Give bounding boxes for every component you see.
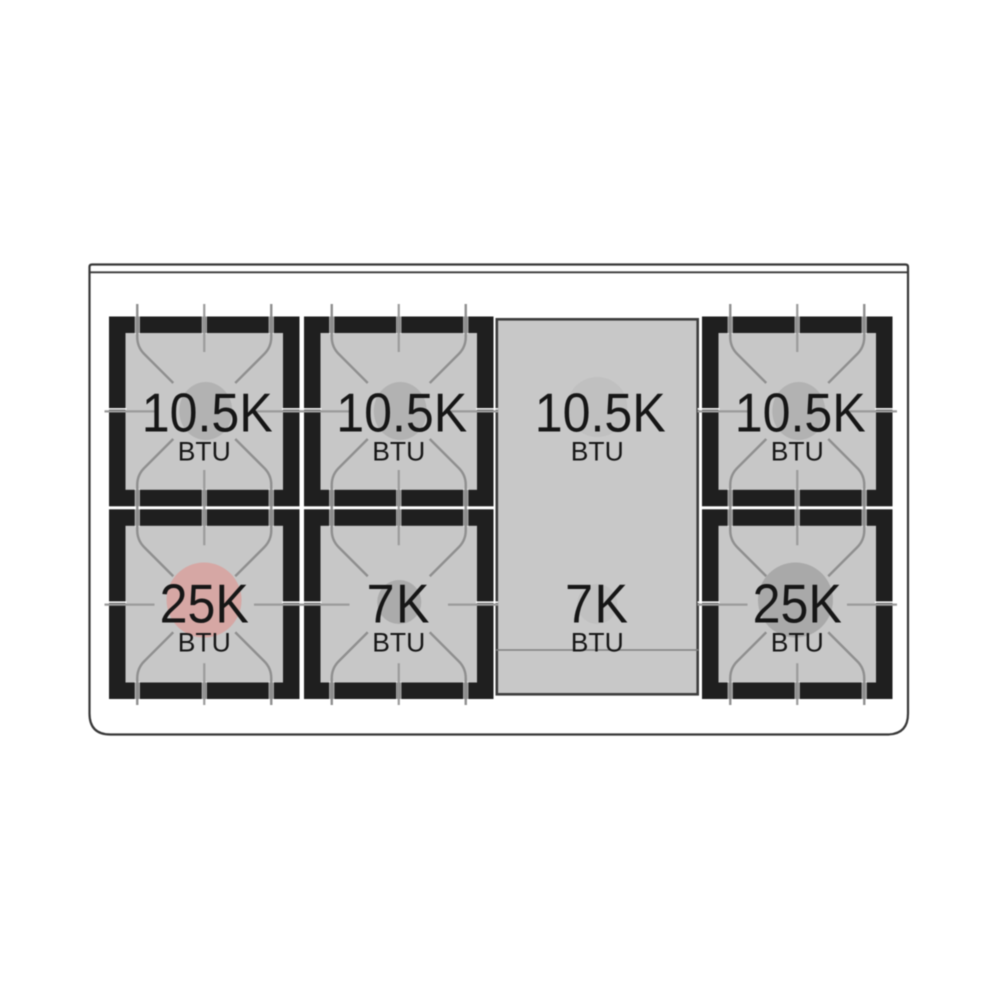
- svg-text:25K: 25K: [753, 575, 842, 635]
- svg-text:7K: 7K: [565, 575, 629, 635]
- svg-text:BTU: BTU: [571, 627, 624, 657]
- svg-text:BTU: BTU: [178, 436, 231, 466]
- svg-text:BTU: BTU: [771, 627, 824, 657]
- svg-text:10.5K: 10.5K: [142, 383, 273, 443]
- svg-text:7K: 7K: [367, 575, 431, 635]
- svg-text:BTU: BTU: [372, 627, 425, 657]
- svg-text:BTU: BTU: [571, 436, 624, 466]
- svg-text:BTU: BTU: [372, 436, 425, 466]
- svg-text:10.5K: 10.5K: [535, 383, 666, 443]
- svg-text:10.5K: 10.5K: [735, 383, 866, 443]
- svg-text:BTU: BTU: [771, 436, 824, 466]
- svg-text:10.5K: 10.5K: [336, 383, 467, 443]
- svg-text:25K: 25K: [160, 575, 249, 635]
- svg-text:BTU: BTU: [178, 627, 231, 657]
